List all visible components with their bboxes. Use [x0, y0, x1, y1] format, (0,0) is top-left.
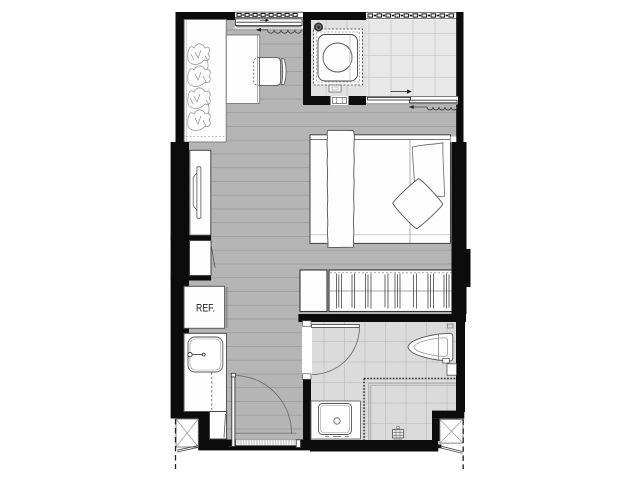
svg-text:REF.: REF.: [196, 302, 215, 314]
